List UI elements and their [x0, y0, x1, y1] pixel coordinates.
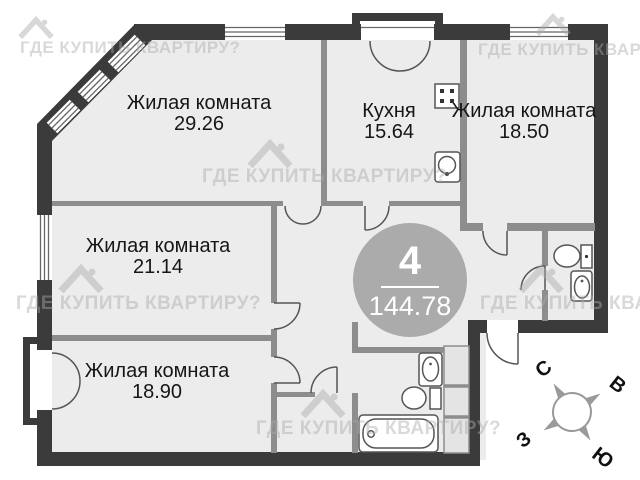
room-name: Жилая комната — [449, 101, 599, 122]
watermark-house-icon — [247, 138, 293, 168]
room-name: Жилая комната — [82, 361, 232, 382]
total-area-badge: 4 144.78 — [353, 223, 467, 337]
floor-plan: ГДЕ КУПИТЬ КВАРТИРУ? ГДЕ КУПИТЬ КВАРТИРУ… — [0, 0, 640, 480]
watermark-house-icon — [518, 263, 564, 293]
room-area: 18.50 — [499, 122, 549, 143]
watermark: ГДЕ КУПИТЬ КВАРТИРУ? — [480, 293, 640, 315]
room-area: 21.14 — [133, 257, 183, 278]
watermark: ГДЕ КУПИТЬ КВАРТИРУ? — [20, 38, 240, 58]
badge-divider — [381, 286, 439, 288]
room-area: 18.90 — [132, 382, 182, 403]
room-area: 15.64 — [364, 122, 414, 143]
watermark: ГДЕ КУПИТЬ КВАРТИРУ? — [256, 418, 501, 440]
bath-toilet-icon — [402, 387, 441, 409]
room-label-living-21-14: Жилая комната 21.14 — [83, 236, 233, 278]
watermark-house-icon — [300, 388, 346, 418]
watermark: ГДЕ КУПИТЬ КВАРТИРУ? — [16, 293, 261, 315]
compass-rose — [525, 365, 619, 459]
bath-sink-icon — [419, 353, 442, 386]
room-label-kitchen: Кухня 15.64 — [314, 101, 464, 143]
room-label-living-29-26: Жилая комната 29.26 — [124, 93, 274, 135]
room-count: 4 — [399, 241, 421, 281]
watermark-house-icon — [18, 15, 54, 39]
room-name: Жилая комната — [124, 93, 274, 114]
watermark-house-icon — [535, 12, 571, 36]
room-area: 29.26 — [174, 114, 224, 135]
watermark: ГДЕ КУПИТЬ КВАРТИРУ? — [202, 166, 447, 188]
watermark: ГДЕ КУПИТЬ КВАРТИРУ? — [478, 40, 640, 60]
room-label-living-18-50: Жилая комната 18.50 — [449, 101, 599, 143]
room-name: Кухня — [314, 101, 464, 122]
room-label-living-18-90: Жилая комната 18.90 — [82, 361, 232, 403]
total-area: 144.78 — [369, 292, 452, 320]
room-name: Жилая комната — [83, 236, 233, 257]
